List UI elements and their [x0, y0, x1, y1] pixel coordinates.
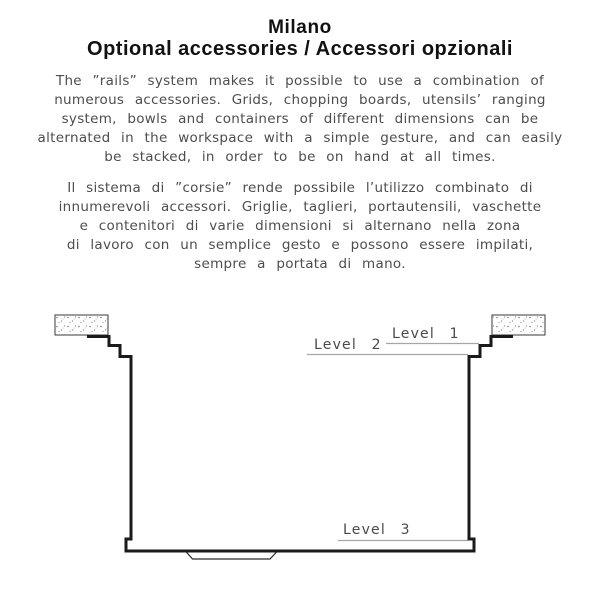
diagram-canvas: [0, 0, 600, 600]
document-page: Milano Optional accessories / Accessori …: [0, 0, 600, 600]
sink-profile: [87, 337, 513, 552]
level-2-label: Level 2: [314, 338, 382, 352]
level-3-label: Level 3: [343, 523, 411, 537]
sink-cross-section-diagram: Level 1 Level 2 Level 3: [0, 0, 600, 600]
countertop-left: [55, 315, 108, 335]
level-1-label: Level 1: [392, 327, 460, 341]
countertop-right: [492, 315, 545, 335]
